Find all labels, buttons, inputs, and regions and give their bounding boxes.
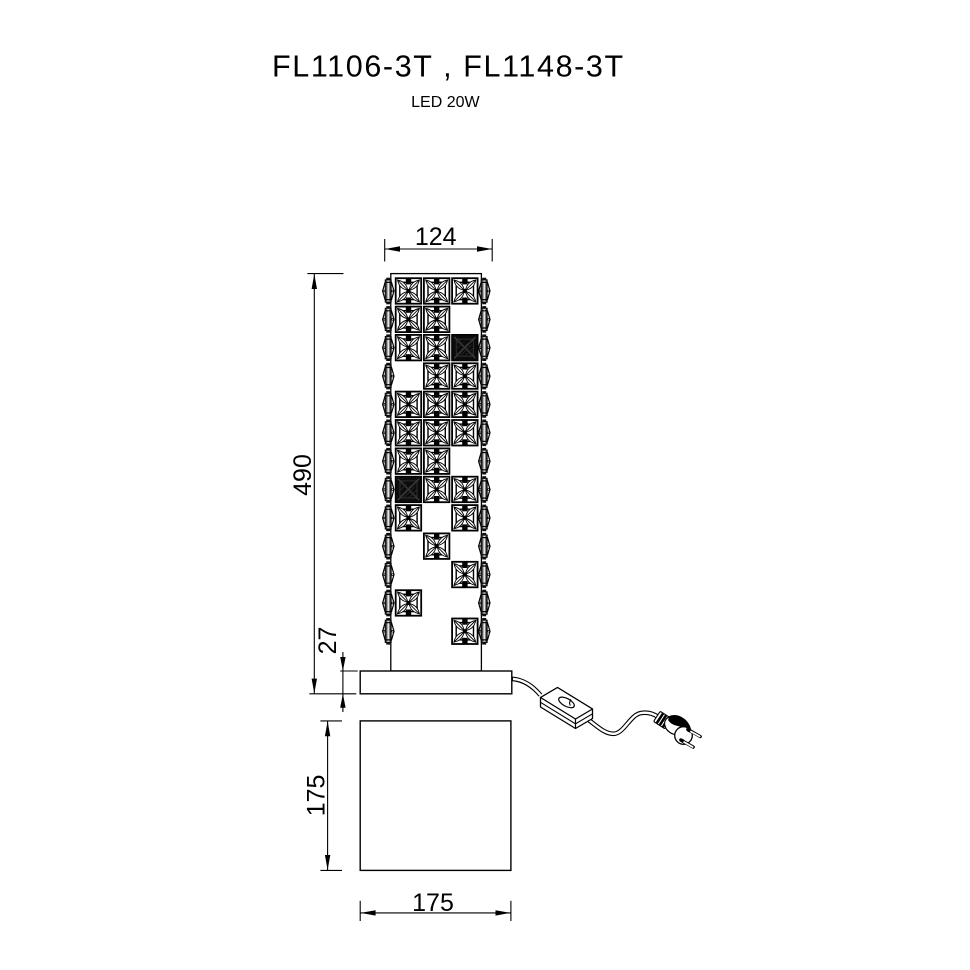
svg-text:490: 490: [289, 454, 317, 496]
svg-text:LED 20W: LED 20W: [411, 94, 480, 111]
svg-text:27: 27: [314, 627, 342, 655]
svg-text:FL1106-3T , FL1148-3T: FL1106-3T , FL1148-3T: [272, 50, 625, 84]
svg-text:175: 175: [302, 775, 330, 817]
svg-text:124: 124: [415, 223, 457, 251]
svg-text:175: 175: [412, 889, 454, 917]
